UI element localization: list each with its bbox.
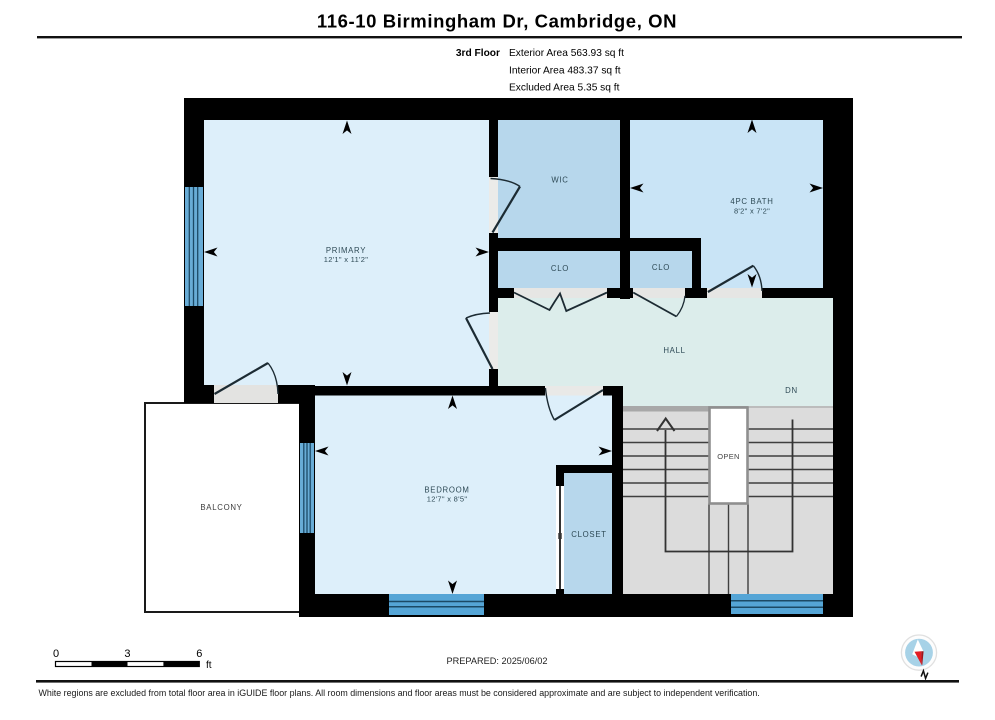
svg-text:Interior Area 483.37 sq ft: Interior Area 483.37 sq ft <box>509 65 621 76</box>
svg-text:CLOSET: CLOSET <box>571 530 606 539</box>
svg-text:6: 6 <box>196 648 202 660</box>
svg-text:WIC: WIC <box>551 176 568 185</box>
svg-text:12'1" x 11'2": 12'1" x 11'2" <box>324 255 369 264</box>
svg-text:PREPARED: 2025/06/02: PREPARED: 2025/06/02 <box>447 656 548 666</box>
svg-text:CLO: CLO <box>652 263 670 272</box>
svg-text:HALL: HALL <box>663 346 685 355</box>
svg-text:Exterior Area 563.93 sq ft: Exterior Area 563.93 sq ft <box>509 48 624 59</box>
svg-text:BEDROOM: BEDROOM <box>424 486 469 495</box>
svg-text:4PC BATH: 4PC BATH <box>730 197 773 206</box>
svg-text:12'7" x 8'5": 12'7" x 8'5" <box>427 495 468 504</box>
svg-text:3: 3 <box>124 648 130 660</box>
svg-text:Excluded Area 5.35 sq ft: Excluded Area 5.35 sq ft <box>509 83 620 94</box>
svg-text:BALCONY: BALCONY <box>200 503 242 512</box>
svg-text:PRIMARY: PRIMARY <box>326 246 366 255</box>
svg-text:3rd Floor: 3rd Floor <box>456 48 500 59</box>
svg-text:OPEN: OPEN <box>717 452 739 461</box>
svg-text:8'2" x 7'2": 8'2" x 7'2" <box>734 207 770 216</box>
svg-text:ft: ft <box>206 660 212 671</box>
svg-text:DN: DN <box>785 386 798 395</box>
svg-text:0: 0 <box>53 648 59 660</box>
svg-text:116-10 Birmingham Dr, Cambridg: 116-10 Birmingham Dr, Cambridge, ON <box>317 11 677 32</box>
svg-text:White regions are excluded fro: White regions are excluded from total fl… <box>39 688 760 698</box>
svg-text:CLO: CLO <box>551 264 569 273</box>
